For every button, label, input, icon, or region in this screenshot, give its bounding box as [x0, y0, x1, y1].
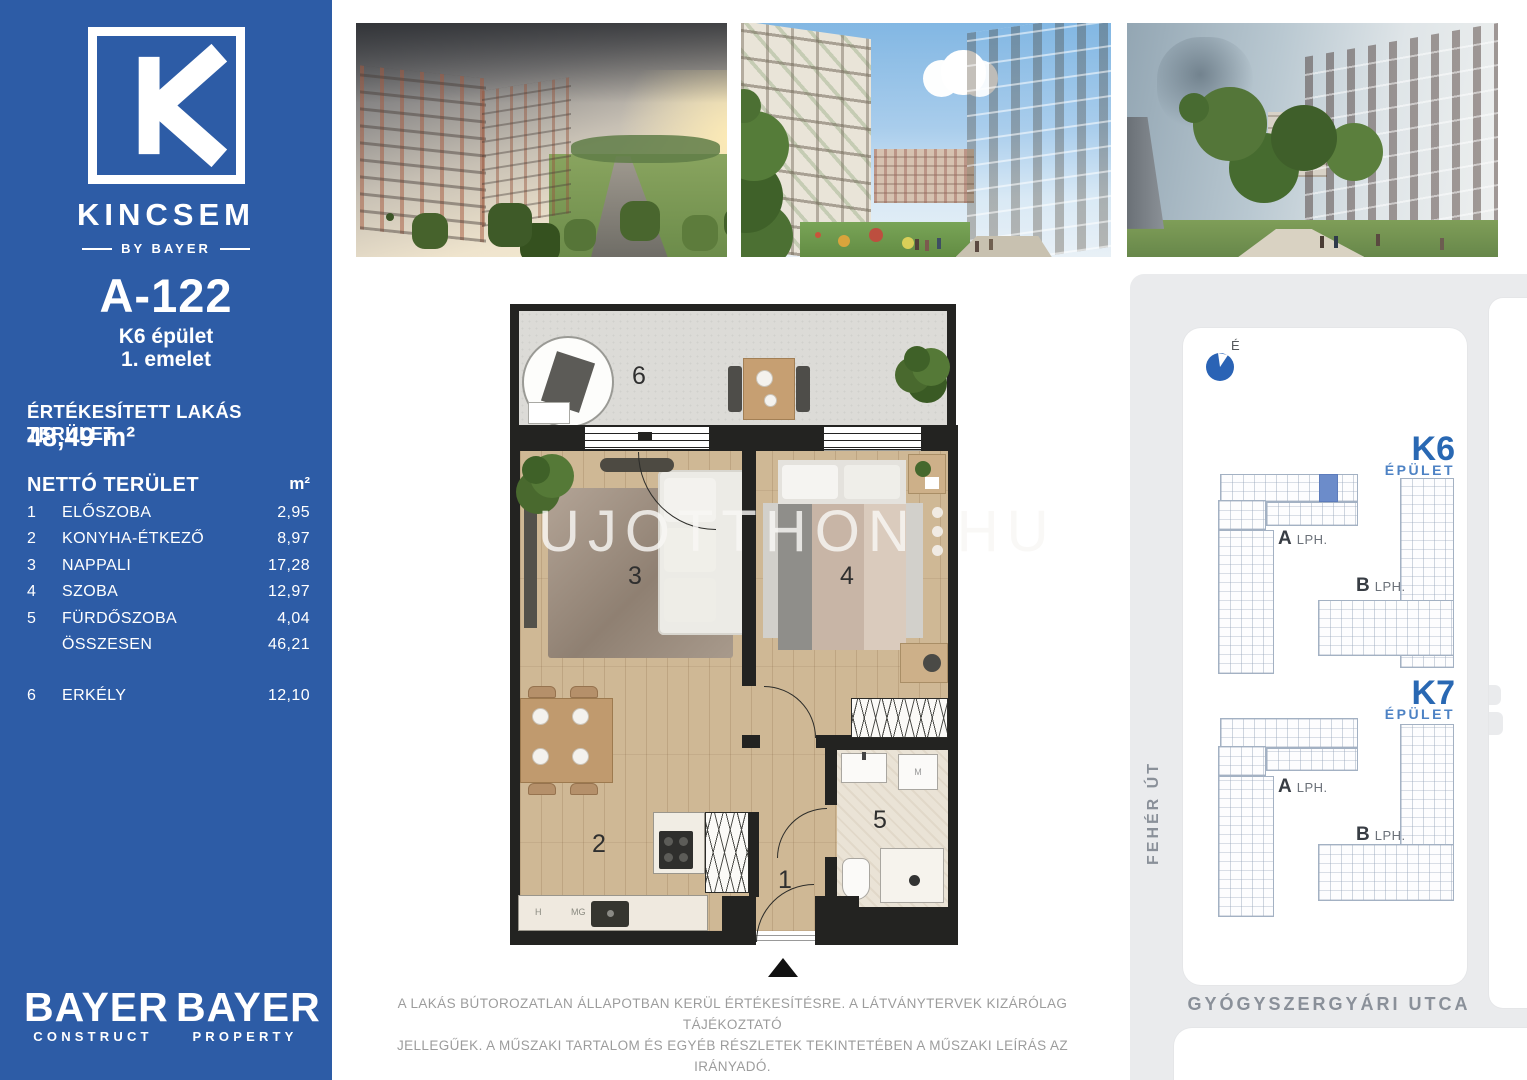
k7-stair-b-label: B LPH.	[1356, 824, 1406, 846]
row-num: 3	[27, 557, 62, 579]
byline-dash-left	[82, 248, 112, 250]
balcony-table	[743, 358, 795, 420]
area-row-erkely: 6 ERKÉLY 12,10	[27, 687, 310, 709]
area-row-nappali: 3 NAPPALI 17,28	[27, 557, 310, 579]
shower-drain	[909, 875, 920, 886]
watermark-left: UJOTTHON	[538, 498, 918, 565]
washing-machine: M	[898, 754, 938, 790]
room-number-bath: 5	[873, 806, 887, 835]
row-value: 12,97	[268, 583, 310, 605]
watermark-right: HU	[957, 498, 1057, 565]
row-num	[27, 636, 62, 658]
k7-stair-a-label: A LPH.	[1278, 776, 1328, 798]
bayer-construct-title: BAYER	[24, 988, 162, 1026]
row-value: 17,28	[268, 557, 310, 579]
row-num: 5	[27, 610, 62, 632]
faucet	[862, 752, 866, 760]
k7-subtitle: ÉPÜLET	[1365, 706, 1455, 722]
k6-stair-b-label: B LPH.	[1356, 575, 1406, 597]
tray	[923, 654, 941, 672]
dining-chair	[528, 783, 556, 795]
row-value: 2,95	[277, 504, 310, 526]
row-num: 6	[27, 687, 62, 709]
far-building	[874, 149, 974, 203]
brand-byline: BY BAYER	[0, 241, 332, 256]
stair-letter: A	[1278, 528, 1292, 550]
room-number-balcony: 6	[632, 362, 646, 391]
kincsem-logo-box	[88, 27, 245, 184]
treeline	[571, 135, 719, 163]
plate	[532, 748, 549, 765]
k6-wing-a-corner	[1218, 500, 1266, 530]
bayer-property-sub: PROPERTY	[176, 1029, 314, 1044]
balcony-bench	[528, 402, 570, 424]
plate	[572, 708, 589, 725]
wall-balcony-left	[510, 304, 519, 425]
stair-sub: LPH.	[1297, 532, 1328, 547]
tree-cluster	[386, 213, 394, 221]
disclaimer: A LAKÁS BÚTOROZATLAN ÁLLAPOTBAN KERÜL ÉR…	[360, 993, 1105, 1077]
balcony-chair-left	[728, 366, 742, 412]
room-number-kitchen: 2	[592, 830, 606, 859]
row-num: 4	[27, 583, 62, 605]
plate	[756, 370, 773, 387]
byline-text: BY BAYER	[121, 241, 211, 256]
k6-wing-a-left	[1218, 530, 1274, 674]
shower	[880, 848, 944, 903]
stair-sub: LPH.	[1375, 579, 1406, 594]
living-plant	[522, 456, 550, 484]
nightstand-paper	[925, 477, 939, 489]
row-num: 2	[27, 530, 62, 552]
bayer-construct-logo: BAYER CONSTRUCT	[24, 988, 162, 1044]
area-row-osszesen: ÖSSZESEN 46,21	[27, 636, 310, 658]
site-bottom-block	[1174, 1028, 1527, 1080]
sold-area-value: 48,49 m²	[27, 422, 135, 453]
room-number-living: 3	[628, 562, 642, 591]
floor-plan: 6 3	[508, 298, 963, 960]
k7-wing-a-row2	[1266, 748, 1358, 771]
building-name: K6 épület	[0, 325, 332, 349]
pillow	[782, 465, 838, 499]
byline-dash-right	[220, 248, 250, 250]
kitchen-sink	[591, 901, 629, 927]
people	[1320, 236, 1324, 248]
row-name: KONYHA-ÉTKEZŐ	[62, 530, 277, 552]
k6-wing-b-bottom	[1318, 600, 1454, 656]
bayer-construct-sub: CONSTRUCT	[24, 1029, 162, 1044]
pillow	[844, 465, 900, 499]
row-name: SZOBA	[62, 583, 268, 605]
row-value: 8,97	[277, 530, 310, 552]
brand-name: KINCSEM	[0, 197, 332, 233]
plate	[764, 394, 777, 407]
north-compass-icon	[1205, 352, 1235, 382]
washer-label: M	[914, 767, 922, 777]
sidebar: KINCSEM BY BAYER A-122 K6 épület 1. emel…	[0, 0, 332, 1080]
render-courtyard-view	[741, 23, 1111, 257]
stair-letter: B	[1356, 824, 1370, 846]
k7-wing-b-bottom	[1318, 844, 1454, 901]
wardrobe	[851, 698, 948, 738]
disclaimer-line-2: JELLEGŰEK. A MŰSZAKI TARTALOM ÉS EGYÉB R…	[360, 1035, 1105, 1077]
window-bedroom	[824, 427, 921, 449]
row-value: 12,10	[268, 687, 310, 709]
row-name: ERKÉLY	[62, 687, 268, 709]
net-area-unit: m²	[289, 474, 310, 497]
wall-bottom	[510, 931, 956, 945]
kitchen-counter-lower: H MG	[518, 895, 708, 931]
area-row-szoba: 4 SZOBA 12,97	[27, 583, 310, 605]
bedroom-bench	[900, 643, 948, 683]
k6-subtitle: ÉPÜLET	[1365, 462, 1455, 478]
site-right-notch	[1489, 685, 1501, 705]
burners	[664, 837, 673, 846]
row-name: ÖSSZESEN	[62, 636, 268, 658]
hood-label: H	[535, 907, 542, 917]
k7-wing-a-corner	[1218, 746, 1266, 776]
toilet	[842, 858, 870, 900]
street-gyogyszergyari-utca: GYÓGYSZERGYÁRI UTCA	[1174, 994, 1484, 1015]
wall-balcony-right	[947, 304, 956, 425]
render-street-view	[356, 23, 727, 257]
wall-balcony-top	[510, 304, 956, 311]
pantry-closet	[705, 812, 749, 893]
plate	[532, 708, 549, 725]
k6-wing-a-row2	[1266, 502, 1358, 526]
tree-cluster	[1179, 93, 1209, 123]
entrance-arrow-icon	[768, 958, 798, 977]
stair-letter: A	[1278, 776, 1292, 798]
wall-pantry-hall	[749, 812, 759, 897]
k7-wing-a-top	[1220, 718, 1358, 748]
dining-chair	[570, 686, 598, 698]
lawn	[800, 222, 970, 257]
nightstand	[908, 454, 946, 494]
k6-stair-a-label: A LPH.	[1278, 528, 1328, 550]
stair-sub: LPH.	[1375, 828, 1406, 843]
watermark-dots-icon	[932, 507, 943, 556]
wall-living-bedroom	[742, 450, 756, 686]
right-building-facade	[967, 23, 1111, 257]
wall-bath-top	[825, 738, 948, 750]
plate	[572, 748, 589, 765]
north-label: É	[1231, 338, 1240, 353]
people	[915, 239, 919, 250]
brochure-page: KINCSEM BY BAYER A-122 K6 épület 1. emel…	[0, 0, 1527, 1080]
net-area-title: NETTÓ TERÜLET	[27, 474, 199, 497]
dining-chair	[570, 783, 598, 795]
area-row-furdoszoba: 5 FÜRDŐSZOBA 4,04	[27, 610, 310, 632]
k7-wing-a-left	[1218, 776, 1274, 917]
watermark: UJOTTHON HU	[538, 498, 1057, 565]
building-facade-front	[360, 65, 486, 242]
floor-name: 1. emelet	[0, 348, 332, 372]
kincsem-k-icon	[97, 36, 236, 175]
wall-stub	[742, 735, 760, 748]
stove	[659, 831, 693, 869]
building-facade-side	[482, 77, 571, 227]
site-right-block	[1489, 298, 1527, 1008]
balcony-chair-right	[796, 366, 810, 412]
bayer-property-logo: BAYER PROPERTY	[176, 988, 314, 1044]
area-row-konyha: 2 KONYHA-ÉTKEZŐ 8,97	[27, 530, 310, 552]
nightstand-plant	[915, 461, 931, 477]
row-value: 46,21	[268, 636, 310, 658]
dining-chair	[528, 686, 556, 698]
row-name: NAPPALI	[62, 557, 268, 579]
room-number-bedroom: 4	[840, 562, 854, 591]
street-feher-ut: FEHÉR ÚT	[1145, 701, 1163, 925]
kitchen-counter-upper	[653, 812, 705, 874]
row-name: ELŐSZOBA	[62, 504, 277, 526]
stair-sub: LPH.	[1297, 780, 1328, 795]
row-num: 1	[27, 504, 62, 526]
stair-letter: B	[1356, 575, 1370, 597]
row-value: 4,04	[277, 610, 310, 632]
wall-left	[510, 425, 520, 945]
balcony-plant	[904, 346, 930, 372]
disclaimer-line-1: A LAKÁS BÚTOROZATLAN ÁLLAPOTBAN KERÜL ÉR…	[360, 993, 1105, 1035]
window-mullion	[638, 432, 652, 440]
sink-drain	[607, 910, 614, 917]
bayer-property-title: BAYER	[176, 988, 314, 1026]
entry-jamb-left	[722, 896, 756, 931]
site-right-notch	[1489, 712, 1503, 735]
k6-highlighted-unit	[1319, 474, 1338, 502]
net-area-header: NETTÓ TERÜLET m²	[27, 474, 310, 497]
entry-jamb-right	[815, 896, 859, 931]
area-row-eloszoba: 1 ELŐSZOBA 2,95	[27, 504, 310, 526]
row-name: FÜRDŐSZOBA	[62, 610, 277, 632]
tv-bench	[524, 503, 537, 628]
unit-code: A-122	[0, 268, 332, 323]
wall-bath-left-upper	[825, 750, 837, 805]
mg-label: MG	[571, 907, 586, 917]
render-promenade-view	[1127, 23, 1498, 257]
bathroom-sink	[841, 753, 887, 783]
